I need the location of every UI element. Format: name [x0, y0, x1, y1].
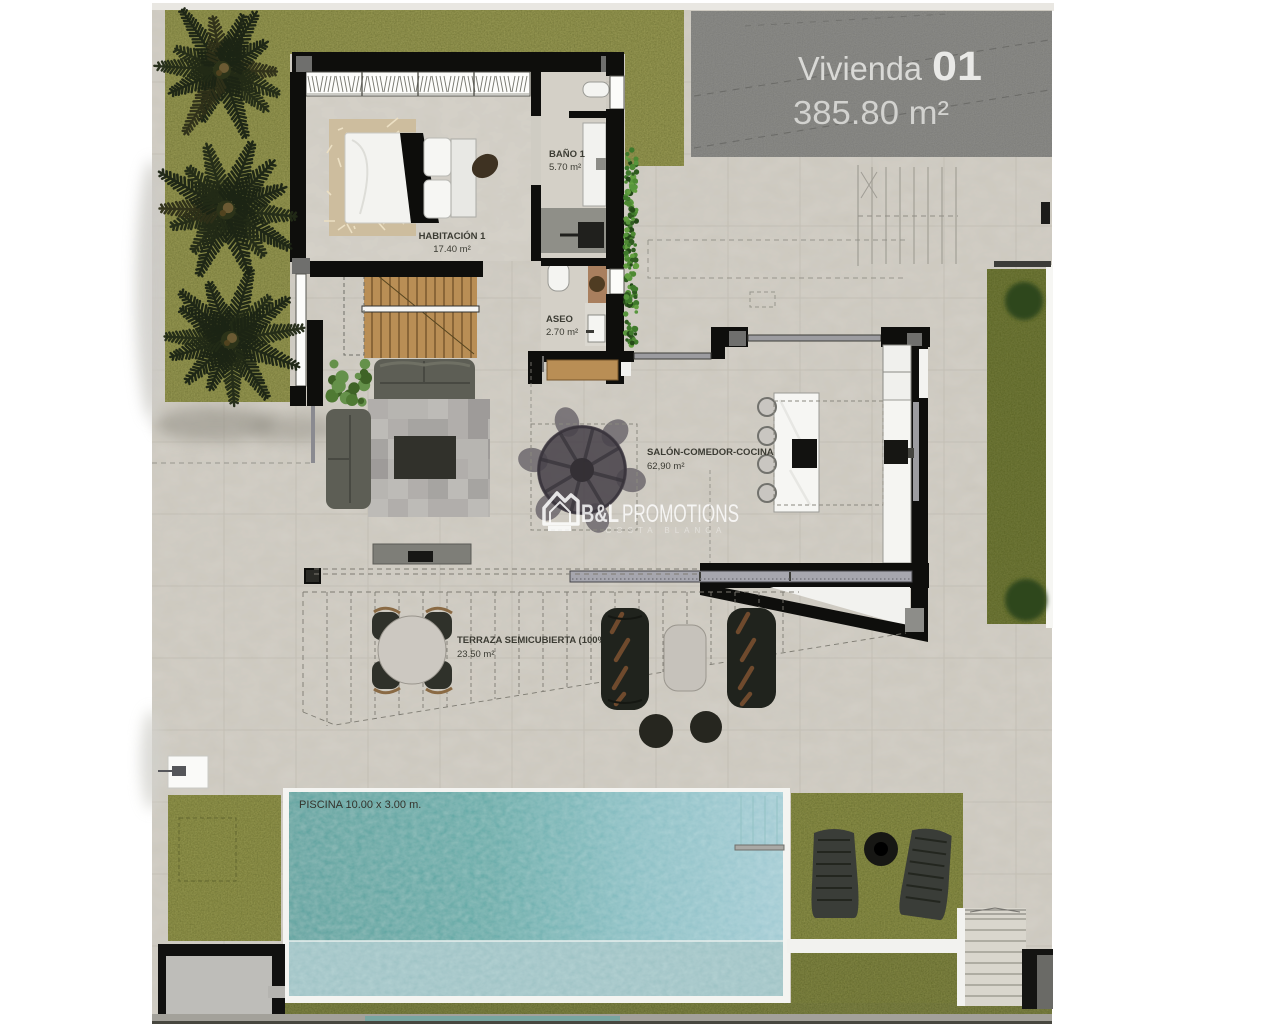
svg-text:Vivienda: Vivienda: [798, 50, 923, 87]
svg-text:23.50 m²: 23.50 m²: [457, 649, 495, 660]
svg-text:5.70 m²: 5.70 m²: [549, 162, 581, 173]
svg-text:2.70 m²: 2.70 m²: [546, 327, 578, 338]
svg-text:62,90 m²: 62,90 m²: [647, 461, 685, 472]
svg-text:PROMOTIONS: PROMOTIONS: [622, 500, 739, 528]
svg-text:TERRAZA SEMICUBIERTA (100%): TERRAZA SEMICUBIERTA (100%): [457, 635, 609, 646]
svg-text:PISCINA 10.00 x 3.00 m.: PISCINA 10.00 x 3.00 m.: [299, 799, 421, 811]
svg-text:01: 01: [932, 43, 982, 89]
svg-text:ASEO: ASEO: [546, 314, 573, 325]
svg-text:385.80 m²: 385.80 m²: [793, 94, 949, 131]
svg-text:SALÓN-COMEDOR-COCINA: SALÓN-COMEDOR-COCINA: [647, 446, 774, 458]
svg-text:HABITACIÓN 1: HABITACIÓN 1: [419, 230, 487, 242]
svg-text:B&L: B&L: [581, 500, 619, 528]
svg-text:17.40 m²: 17.40 m²: [433, 244, 471, 255]
svg-text:BAÑO 1: BAÑO 1: [549, 149, 586, 160]
svg-text:COSTA BLANCA: COSTA BLANCA: [606, 526, 727, 535]
